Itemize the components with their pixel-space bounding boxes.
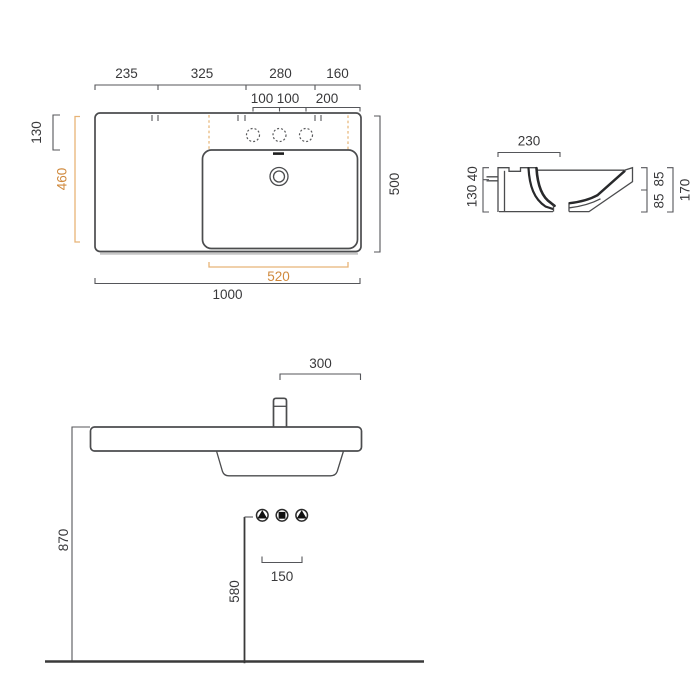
- dim-label: 130: [29, 121, 44, 144]
- dim-label: 150: [271, 569, 294, 584]
- plan-view: 235 325 280 160 100 100 200 130 460 500 …: [29, 66, 402, 302]
- dim-width-segments-bracket: [95, 85, 360, 90]
- dim-label: 170: [678, 179, 693, 202]
- dim-label: 230: [518, 134, 541, 149]
- washbasin-technical-drawing: 235 325 280 160 100 100 200 130 460 500 …: [0, 0, 699, 700]
- dim-label-accent: 520: [267, 269, 290, 284]
- dim-label: 100: [251, 91, 274, 106]
- dim-label: 870: [56, 529, 71, 552]
- dim-300-bracket: [280, 374, 361, 380]
- dim-85-85-bracket: [641, 168, 647, 212]
- section-inner-diagonal: [598, 171, 625, 195]
- section-outer-right: [569, 168, 633, 212]
- dim-label: 130: [465, 185, 480, 208]
- dim-label: 40: [465, 166, 480, 181]
- washbasin-section-profile: [487, 168, 633, 212]
- dim-150-bracket: [262, 557, 302, 563]
- basin-bowl-front: [217, 451, 344, 476]
- dim-label: 160: [326, 66, 349, 81]
- basin-opening-outline: [203, 150, 358, 249]
- connection-symbols: [257, 510, 308, 522]
- dim-40-130-bracket: [483, 168, 489, 212]
- countertop-front: [91, 427, 362, 451]
- dim-label: 85: [652, 171, 667, 186]
- dim-label: 1000: [212, 287, 242, 302]
- waste-outlet-square-icon: [279, 512, 286, 519]
- dim-label: 300: [309, 356, 332, 371]
- dim-tap-holes-bracket: [253, 108, 360, 112]
- dim-460-bracket: [75, 117, 80, 243]
- dim-label: 85: [652, 193, 667, 208]
- dim-520-bracket: [209, 262, 348, 267]
- drawing-canvas: 235 325 280 160 100 100 200 130 460 500 …: [0, 0, 699, 700]
- dim-170-bracket: [667, 168, 673, 212]
- dim-1000-bracket: [95, 278, 360, 284]
- dim-130-bracket: [53, 115, 60, 150]
- section-view: 230 40 130 85 85 170: [465, 134, 693, 213]
- dim-label: 580: [227, 580, 242, 603]
- dim-label: 280: [269, 66, 292, 81]
- section-deck: [498, 168, 536, 212]
- dim-label: 325: [191, 66, 214, 81]
- faucet: [274, 398, 287, 427]
- dim-500-bracket: [374, 116, 380, 252]
- dim-230-bracket: [498, 153, 560, 158]
- dim-label: 500: [387, 173, 402, 196]
- dim-label-accent: 460: [55, 168, 70, 191]
- dim-870-line: [72, 427, 90, 662]
- front-view: 300 870 580 150: [45, 356, 424, 663]
- dim-label: 200: [316, 91, 339, 106]
- section-drain-box: [554, 204, 570, 212]
- dim-label: 100: [277, 91, 300, 106]
- dim-label: 235: [115, 66, 138, 81]
